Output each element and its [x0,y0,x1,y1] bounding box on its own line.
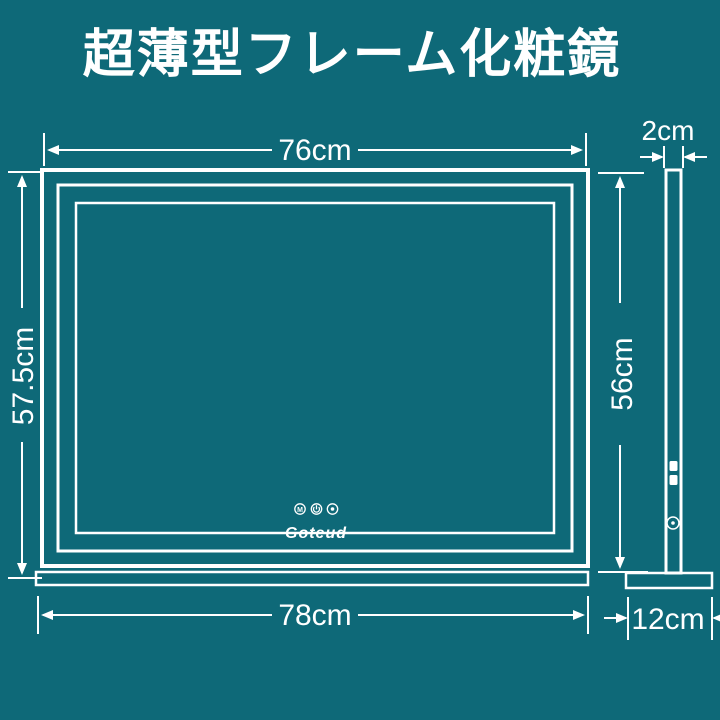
mirror-side-profile [666,170,681,573]
product-dimension-diagram: 超薄型フレーム化粧鏡 M Goteud [0,0,720,720]
touch-button-row: M [295,504,338,514]
mirror-base-front [36,572,588,585]
dimmer-touch-icon [327,504,337,514]
m-touch-glyph: M [297,507,303,514]
mirror-base-side [626,573,712,588]
front-height-label: 57.5cm [7,327,40,425]
side-thickness-dimension: 2cm [640,115,707,168]
side-base-depth-label: 12cm [631,603,704,636]
side-height-dimension: 56cm [598,173,648,572]
power-touch-icon [311,504,321,514]
mirror-inner-frame [58,185,572,551]
side-sensor-dot [671,521,675,525]
mirror-led-strip [76,203,554,533]
front-base-width-dimension: 78cm [38,596,588,634]
front-width-label: 76cm [278,134,351,167]
front-width-dimension: 76cm [44,133,586,167]
diagram-svg: 超薄型フレーム化粧鏡 M Goteud [0,0,720,720]
side-base-depth-dimension: 12cm [604,597,720,640]
brand-logo: Goteud [285,525,347,542]
front-base-width-label: 78cm [278,599,351,632]
m-touch-icon: M [295,504,305,514]
side-switch-button-icon [670,461,678,471]
mirror-front-view: M Goteud [36,170,588,585]
side-height-label: 56cm [606,337,639,410]
side-thickness-label: 2cm [642,115,695,146]
side-switch-button-icon [670,475,678,485]
mirror-outer-frame [42,170,588,566]
page-title: 超薄型フレーム化粧鏡 [83,26,621,84]
front-height-dimension: 57.5cm [7,172,42,578]
